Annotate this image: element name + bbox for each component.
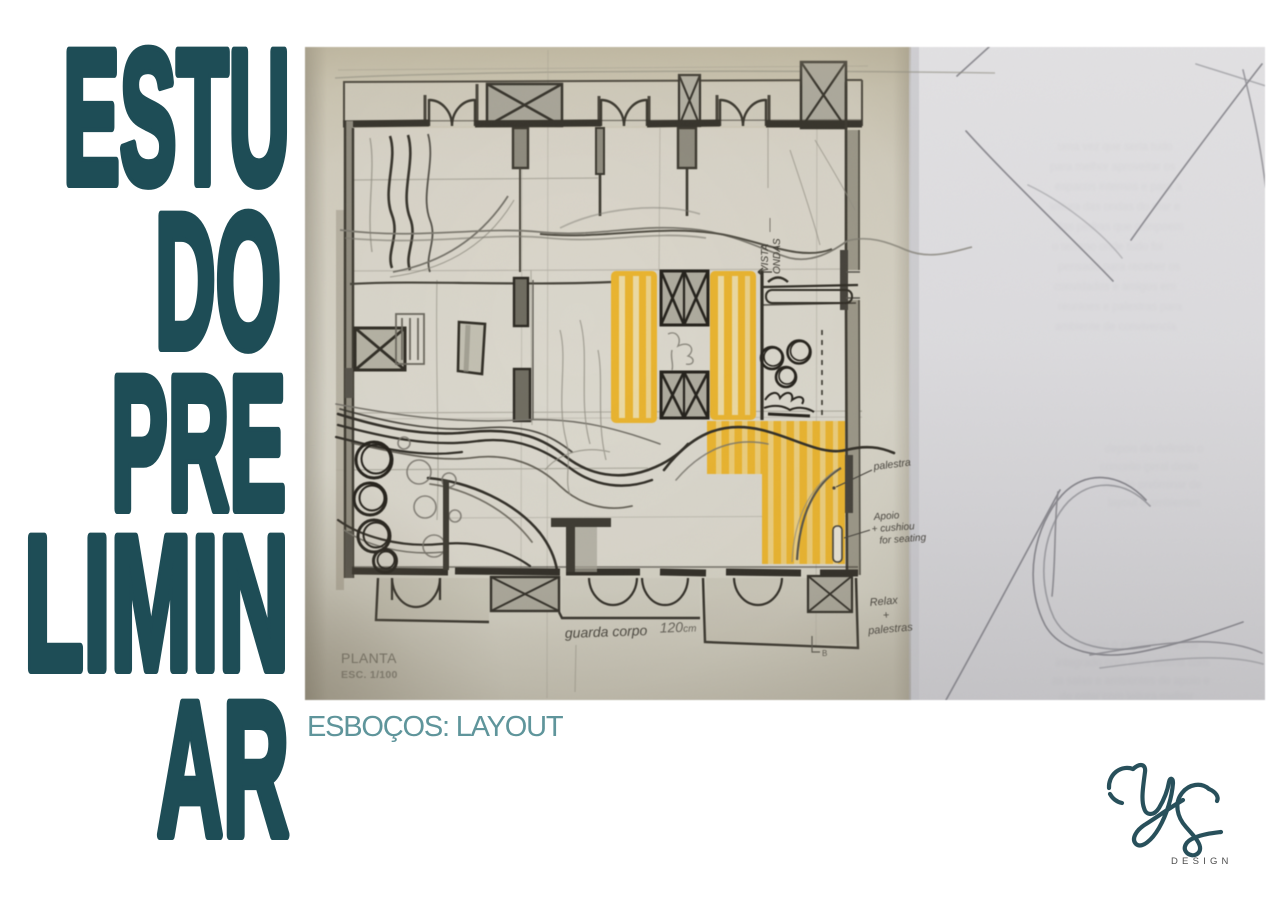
svg-text:DESIGN: DESIGN [1171,856,1233,867]
svg-text:AR: AR [157,663,289,876]
